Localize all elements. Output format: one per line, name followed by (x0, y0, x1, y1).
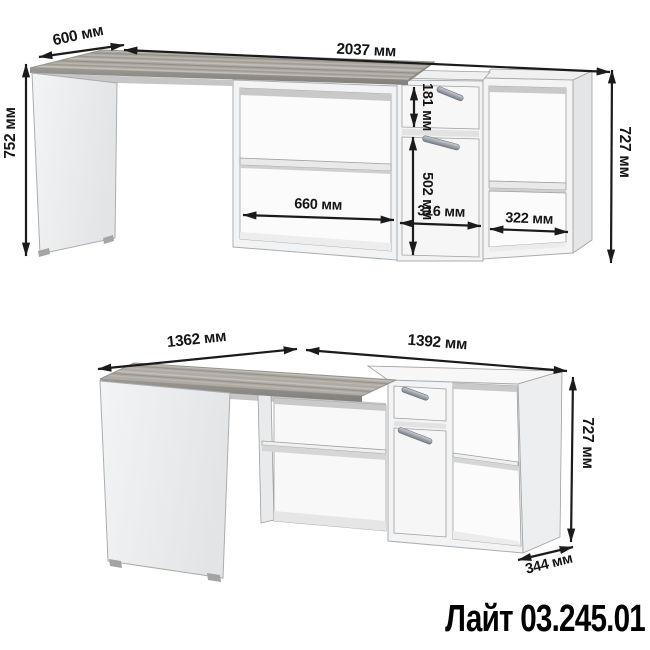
dim-label-niche-width: 660 мм (294, 196, 342, 214)
product-title: Лайт 03.245.01 (445, 598, 645, 640)
front-drawer-cabinet (397, 70, 490, 261)
shelf-unit-side-face (573, 71, 592, 253)
dim-label-desk-height: 752 мм (2, 107, 19, 158)
dim-label-shelf-section: 322 мм (505, 210, 553, 228)
front-desk-niche (233, 80, 397, 260)
dim-line (611, 70, 612, 263)
dim-label-drawer-section: 316 мм (417, 203, 465, 221)
dim-label-persp-height: 727 мм (579, 417, 596, 468)
shelf-upper-compartment (489, 86, 566, 183)
underdesk-opening (274, 398, 386, 531)
furniture-dimension-diagram: 600 мм 2037 мм 752 мм 727 мм 181 мм 502 … (0, 0, 650, 650)
cabinet-side-face (518, 371, 562, 553)
dim-label-cabinet-height: 727 мм (616, 126, 633, 177)
persp-cabinet (368, 366, 562, 553)
dim-label-total-width: 2037 мм (336, 41, 396, 61)
persp-desk-side-panel (100, 381, 230, 582)
desk-side-panel (32, 73, 117, 257)
underdesk-left-wall (258, 393, 274, 523)
persp-door-front (394, 428, 446, 537)
dim-label-drawer-height: 181 мм (419, 83, 435, 131)
